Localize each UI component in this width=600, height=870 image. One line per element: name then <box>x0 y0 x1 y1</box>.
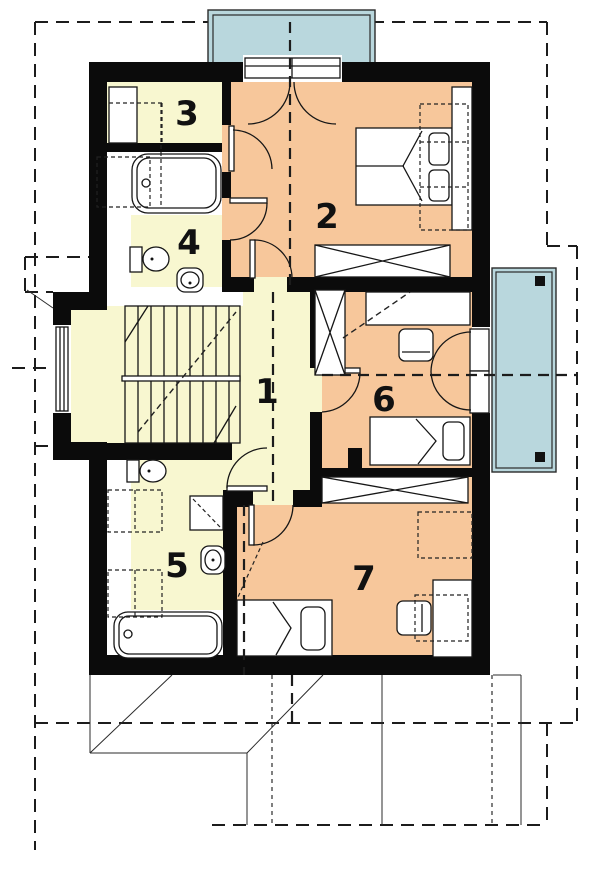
desk <box>433 580 472 657</box>
washbasin <box>201 546 225 574</box>
wardrobe <box>315 290 345 375</box>
double-bed <box>356 128 452 205</box>
toilet <box>127 460 166 482</box>
washbasin <box>177 268 203 292</box>
wardrobe <box>109 87 137 143</box>
toilet <box>130 247 169 272</box>
single-bed <box>237 600 332 656</box>
floor-plan-svg: 1 2 3 4 5 6 7 <box>0 0 600 870</box>
balcony-post-icon <box>535 276 545 286</box>
window-stairwell <box>53 325 71 413</box>
shelf-unit <box>452 87 472 230</box>
balcony-post-icon <box>535 452 545 462</box>
chair <box>399 329 433 361</box>
bathtub <box>114 612 222 658</box>
stair-handrail <box>122 376 240 381</box>
balcony-right <box>492 268 556 472</box>
room-label-2: 2 <box>315 197 339 237</box>
wardrobe <box>322 477 468 503</box>
room-label-5: 5 <box>165 546 189 586</box>
pillow <box>429 133 449 165</box>
shower <box>190 496 223 530</box>
floor-plan-image: 1 2 3 4 5 6 7 <box>0 0 600 870</box>
chair <box>397 601 431 635</box>
lower-roof-lines <box>90 675 521 825</box>
bathtub <box>132 154 221 213</box>
pillow <box>429 170 449 201</box>
room-label-1: 1 <box>255 372 279 412</box>
pillow <box>301 607 325 650</box>
single-bed <box>370 417 470 465</box>
room-label-7: 7 <box>352 559 376 599</box>
room-label-6: 6 <box>372 380 396 420</box>
chimney-pillar <box>348 448 362 468</box>
pillow <box>443 422 464 460</box>
room-label-4: 4 <box>177 223 201 263</box>
room-label-3: 3 <box>175 94 199 134</box>
desk <box>366 292 470 325</box>
wardrobe <box>315 245 450 277</box>
